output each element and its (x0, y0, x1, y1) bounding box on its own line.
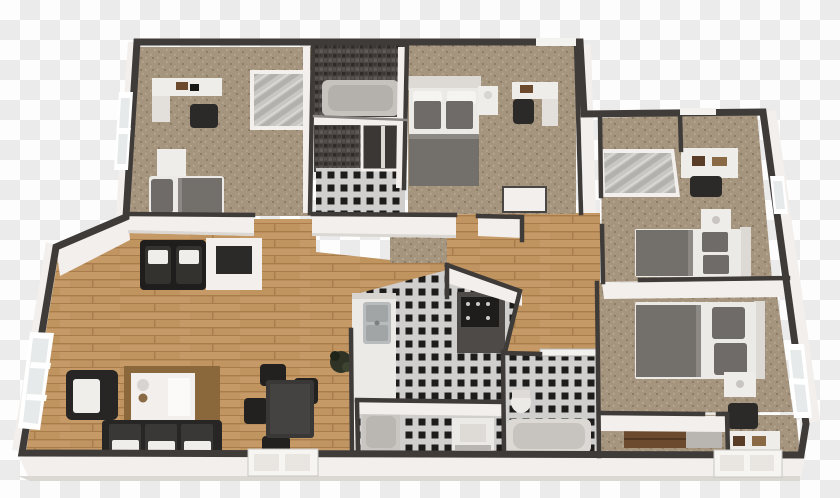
floor-plan-image (0, 0, 840, 498)
desk (681, 148, 738, 178)
entry-door (248, 449, 318, 476)
porch-door (714, 450, 782, 477)
desk-books (692, 156, 705, 166)
counter-stove (457, 292, 505, 353)
master-top-window (536, 38, 576, 46)
floor-plan-stage (0, 0, 840, 498)
glass-partition (540, 349, 597, 356)
nightstand (157, 149, 186, 177)
desk-chair (190, 104, 218, 128)
chair (728, 403, 758, 429)
faucet (375, 321, 380, 326)
single-bed (149, 176, 224, 216)
desk (512, 82, 558, 99)
hall-closet (503, 187, 546, 212)
armchair (66, 370, 118, 420)
lamp (712, 216, 720, 224)
double-bed (635, 301, 765, 379)
double-bed (407, 76, 481, 186)
washing-machine (452, 418, 494, 453)
sliding-closet (250, 70, 312, 130)
desk-books (176, 82, 188, 90)
dining-chair (244, 398, 268, 424)
wing-top-window (680, 108, 716, 115)
mirror-closet (600, 149, 680, 197)
lamp (484, 91, 492, 99)
desk-books (733, 436, 745, 446)
stove (461, 297, 499, 327)
desk-chair (513, 99, 534, 124)
plant (330, 351, 352, 373)
lamp (736, 380, 744, 388)
media-cabinet (206, 238, 262, 290)
double-bed (635, 227, 751, 277)
desk-books (520, 85, 533, 93)
nightstand (478, 86, 498, 115)
desk-chair (690, 176, 722, 197)
coffee-table (131, 373, 195, 420)
